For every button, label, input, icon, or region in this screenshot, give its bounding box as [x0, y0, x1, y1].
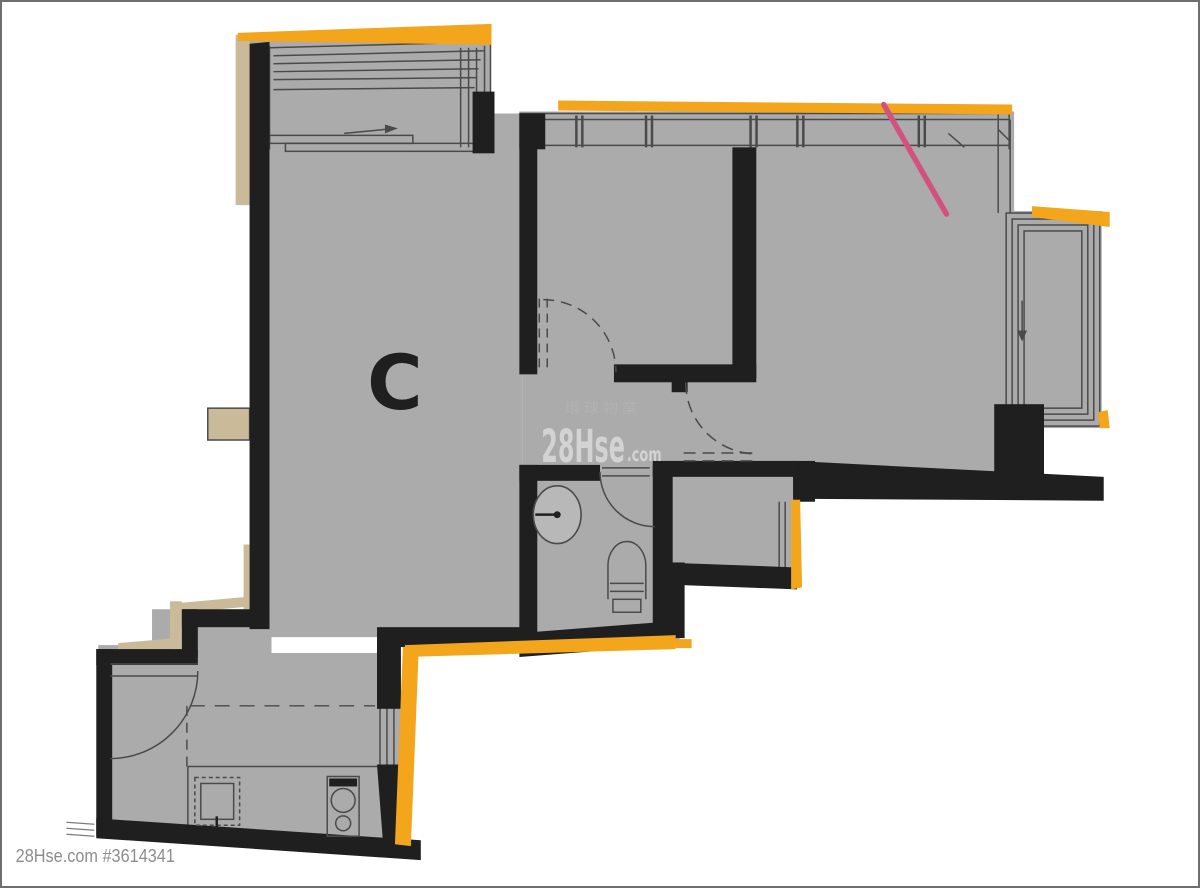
floorplan-image: C 環球物業 28Hse .com 28Hse.com #3614341: [0, 0, 1200, 888]
bathroom-sink: [533, 486, 581, 544]
floorplan-svg: C 環球物業 28Hse .com 28Hse.com #3614341: [2, 2, 1198, 886]
platform-under-tick-orange: [676, 639, 692, 648]
bay-bottom-tick-orange: [1098, 410, 1110, 428]
entrance-kitchen-floor: [98, 653, 401, 842]
brand-watermark: 28Hse: [541, 419, 625, 473]
brand-watermark-tld: .com: [627, 443, 662, 466]
platform-top-band: [653, 461, 793, 477]
bedroom-divider-wall: [732, 147, 756, 378]
pipe-ledge-box: [208, 408, 250, 440]
unit-label: C: [367, 339, 423, 427]
exterior-vent-ticks: [66, 822, 94, 836]
window-band-floor: [519, 112, 1009, 150]
band-gap-floor: [492, 113, 520, 151]
bay-bottom-corner: [994, 404, 1044, 484]
platform-right-orange: [791, 500, 802, 590]
kitchen-right-wall-upper: [377, 643, 401, 709]
bedroom1-left-wall: [519, 113, 537, 374]
tan-accents: [118, 33, 263, 653]
bay-wall-strip-floor: [994, 112, 1014, 222]
bathroom-left-wall: [519, 465, 537, 649]
balcony-left-tan-band: [236, 33, 250, 205]
listing-credit: 28Hse.com #3614341: [16, 846, 175, 867]
balcony-right-wall: [473, 92, 495, 154]
left-wall: [250, 42, 270, 629]
entrance-left-wall: [96, 649, 112, 836]
agency-watermark: 環球物業: [565, 400, 641, 417]
bedroom1-floor: [522, 147, 736, 374]
bedroom2-floor: [754, 147, 1006, 479]
